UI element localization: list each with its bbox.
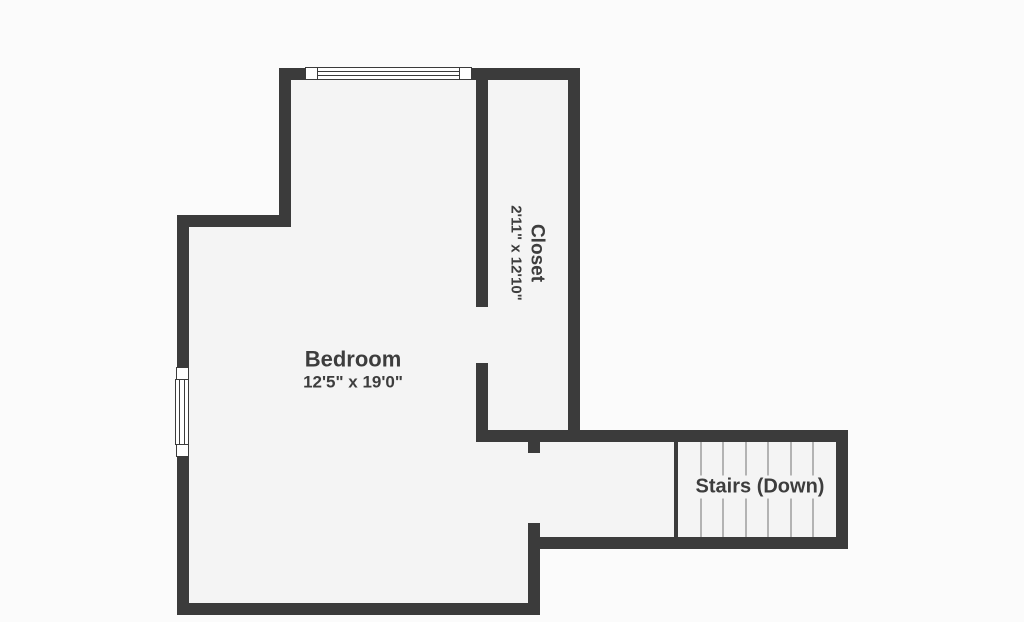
closet-name: Closet xyxy=(526,205,548,301)
wall-corridor-right xyxy=(836,430,848,549)
wall-left-upper xyxy=(279,68,291,227)
window-pane-line xyxy=(318,75,459,76)
closet-label: Closet 2'11" x 12'10" xyxy=(506,205,547,301)
left-window xyxy=(175,379,189,445)
wall-closet-bottom-corridor-top xyxy=(476,430,848,442)
window-pane-line xyxy=(179,380,180,444)
bedroom-floor-upper xyxy=(291,80,477,227)
left-window-post-bottom xyxy=(176,444,189,457)
wall-bedroom-right-stub xyxy=(528,442,540,453)
stairs-label: Stairs (Down) xyxy=(691,476,830,499)
wall-notch xyxy=(177,215,291,227)
stairs-edge-line xyxy=(674,442,678,537)
bedroom-label: Bedroom 12'5" x 19'0" xyxy=(303,346,403,393)
top-window xyxy=(317,67,460,80)
wall-corridor-bottom xyxy=(528,537,848,549)
wall-bottom xyxy=(177,603,540,615)
window-pane-line xyxy=(184,380,185,444)
closet-door-opening xyxy=(476,307,488,363)
closet-dimensions: 2'11" x 12'10" xyxy=(506,205,526,301)
window-pane-line xyxy=(318,71,459,72)
bedroom-name: Bedroom xyxy=(303,346,403,371)
wall-bedroom-closet-upper xyxy=(476,68,488,307)
floorplan-canvas: Bedroom 12'5" x 19'0" Closet 2'11" x 12'… xyxy=(0,0,1024,622)
bedroom-dimensions: 12'5" x 19'0" xyxy=(303,372,403,394)
wall-closet-right xyxy=(568,68,580,442)
top-window-post-right xyxy=(459,67,472,80)
bedroom-door-opening xyxy=(528,453,540,523)
